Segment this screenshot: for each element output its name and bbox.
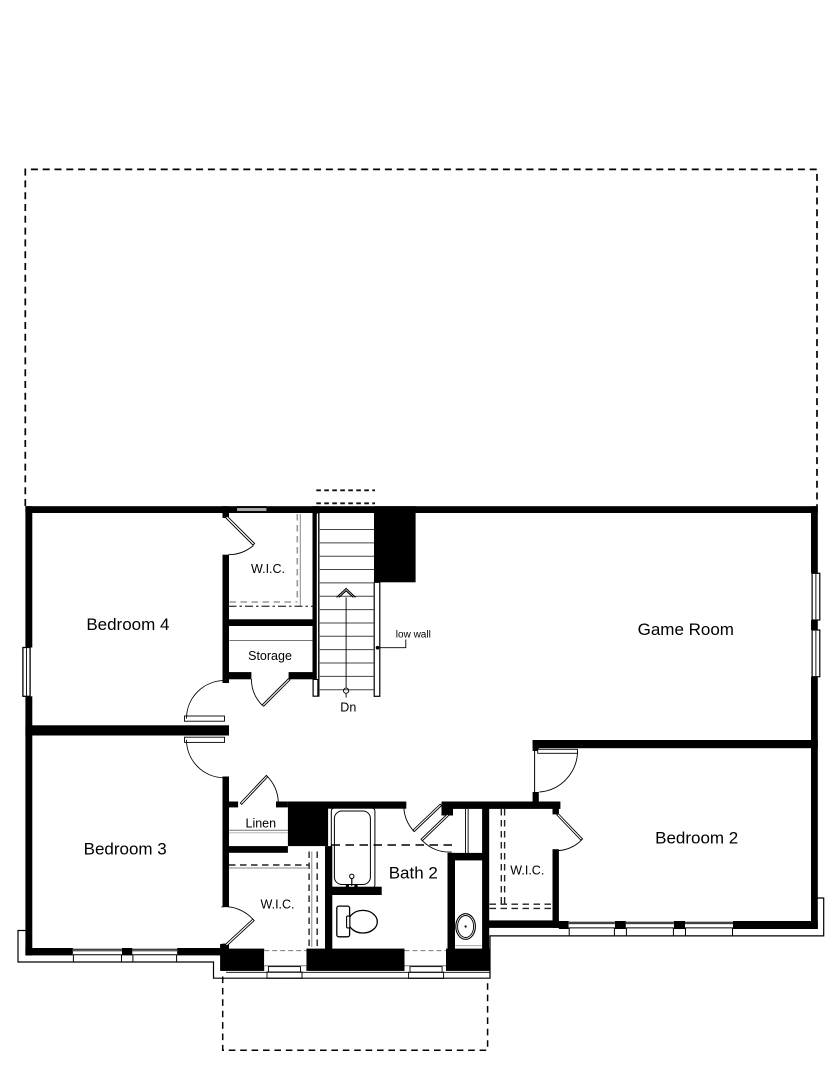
svg-text:Dn: Dn [340,701,356,715]
svg-text:low wall: low wall [396,629,431,640]
svg-text:W.I.C.: W.I.C. [260,897,294,911]
svg-text:Storage: Storage [248,649,292,663]
svg-text:W.I.C.: W.I.C. [251,562,285,576]
svg-text:Game Room: Game Room [638,620,734,639]
svg-text:Bedroom 2: Bedroom 2 [655,829,738,848]
svg-text:Bedroom 4: Bedroom 4 [86,615,169,634]
svg-text:Linen: Linen [246,816,277,830]
svg-text:Bath 2: Bath 2 [389,864,438,883]
svg-text:Bedroom 3: Bedroom 3 [84,839,167,858]
svg-text:W.I.C.: W.I.C. [510,863,544,877]
